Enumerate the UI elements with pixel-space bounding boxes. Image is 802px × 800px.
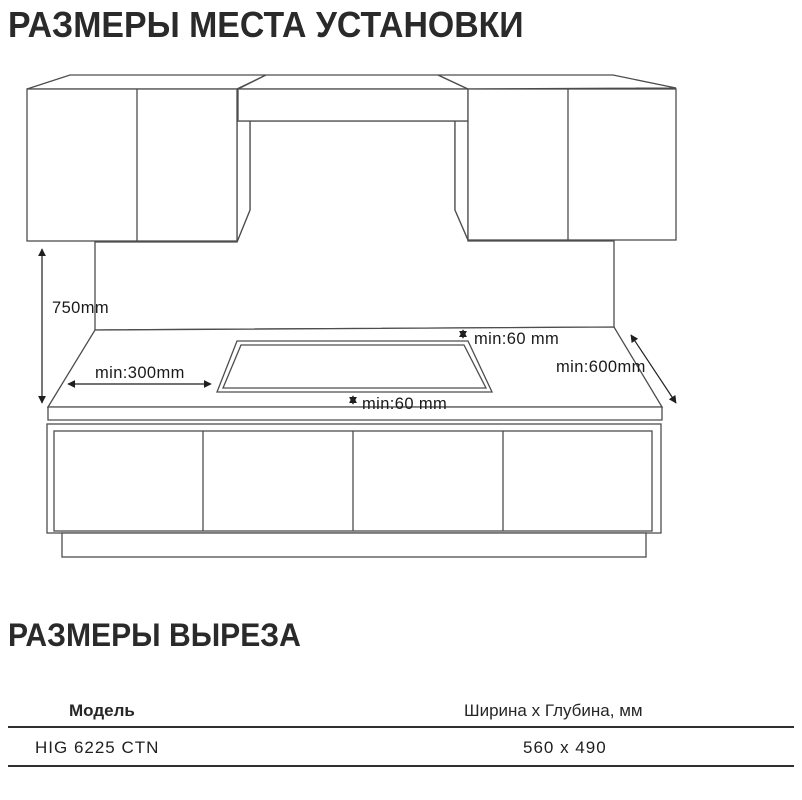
hob-outer-frame: [217, 341, 492, 392]
cooker-hood-top: [238, 75, 468, 89]
dimension-label-300mm: min:300mm: [95, 364, 185, 382]
dimension-label-60mm-back: min:60 mm: [474, 330, 559, 348]
cooker-hood-box: [238, 89, 468, 121]
section-title-cutout: РАЗМЕРЫ ВЫРЕЗА: [8, 617, 301, 654]
table-header-model: Модель: [69, 701, 135, 721]
manual-page: { "install_section": { "title": "РАЗМЕРЫ…: [0, 0, 802, 800]
worktop-front-edge: [48, 407, 662, 420]
cabinet-side-panel-right: [455, 121, 468, 240]
installation-diagram: 750mm min:300mm min:60 mm min:600mm min:…: [0, 0, 802, 600]
size-cell: 560 x 490: [523, 738, 607, 758]
wall-cabinet-left-top: [27, 75, 266, 89]
model-cell: HIG 6225 CTN: [35, 738, 159, 758]
plinth: [62, 533, 646, 557]
dimension-label-60mm-front: min:60 mm: [362, 395, 447, 413]
table-rule-bottom: [8, 765, 794, 767]
base-cabinet: [47, 424, 661, 557]
cabinet-side-panel-left: [237, 121, 250, 242]
table-rule-top: [8, 726, 794, 728]
dimension-label-750mm: 750mm: [52, 299, 109, 317]
wall-cabinet-right: [468, 89, 676, 240]
wall-cabinet-right-top: [438, 75, 676, 89]
dimension-label-600mm: min:600mm: [556, 358, 646, 376]
table-header-size: Ширина x Глубина, мм: [464, 701, 643, 721]
wall-cabinet-left: [27, 89, 237, 241]
